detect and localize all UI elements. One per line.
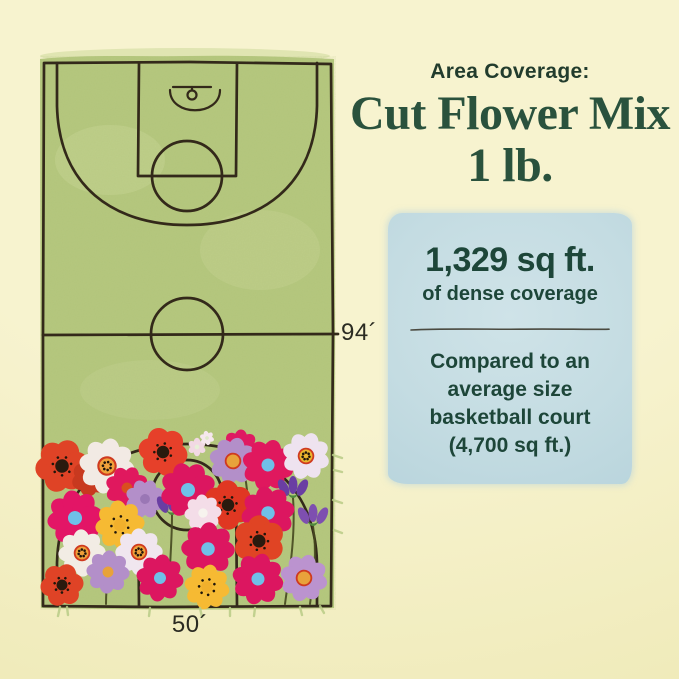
- hand-drawn-divider: [408, 325, 612, 333]
- comparison-line: basketball court: [388, 404, 632, 432]
- product-title-line2: 1 lb.: [340, 140, 679, 192]
- court-width-label: 50´: [155, 611, 225, 639]
- coverage-area-value: 1,329 sq ft.: [388, 241, 632, 280]
- half-court-line: [43, 334, 338, 335]
- court-length-label: 94´: [341, 319, 377, 347]
- area-coverage-eyebrow: Area Coverage:: [340, 60, 679, 84]
- comparison-text: Compared to an average size basketball c…: [388, 348, 632, 460]
- coverage-stats-card: 1,329 sq ft. of dense coverage Compared …: [388, 213, 632, 484]
- product-title-line1: Cut Flower Mix: [340, 88, 679, 140]
- product-title: Cut Flower Mix 1 lb.: [340, 88, 679, 193]
- infographic-canvas: 94´ 50´ Area Coverage: Cut Flower Mix 1 …: [0, 0, 679, 679]
- comparison-line: average size: [388, 376, 632, 404]
- comparison-line: Compared to an: [388, 348, 632, 376]
- comparison-line: (4,700 sq ft.): [388, 432, 632, 460]
- header: Area Coverage: Cut Flower Mix 1 lb.: [340, 60, 679, 193]
- coverage-density-label: of dense coverage: [388, 283, 632, 306]
